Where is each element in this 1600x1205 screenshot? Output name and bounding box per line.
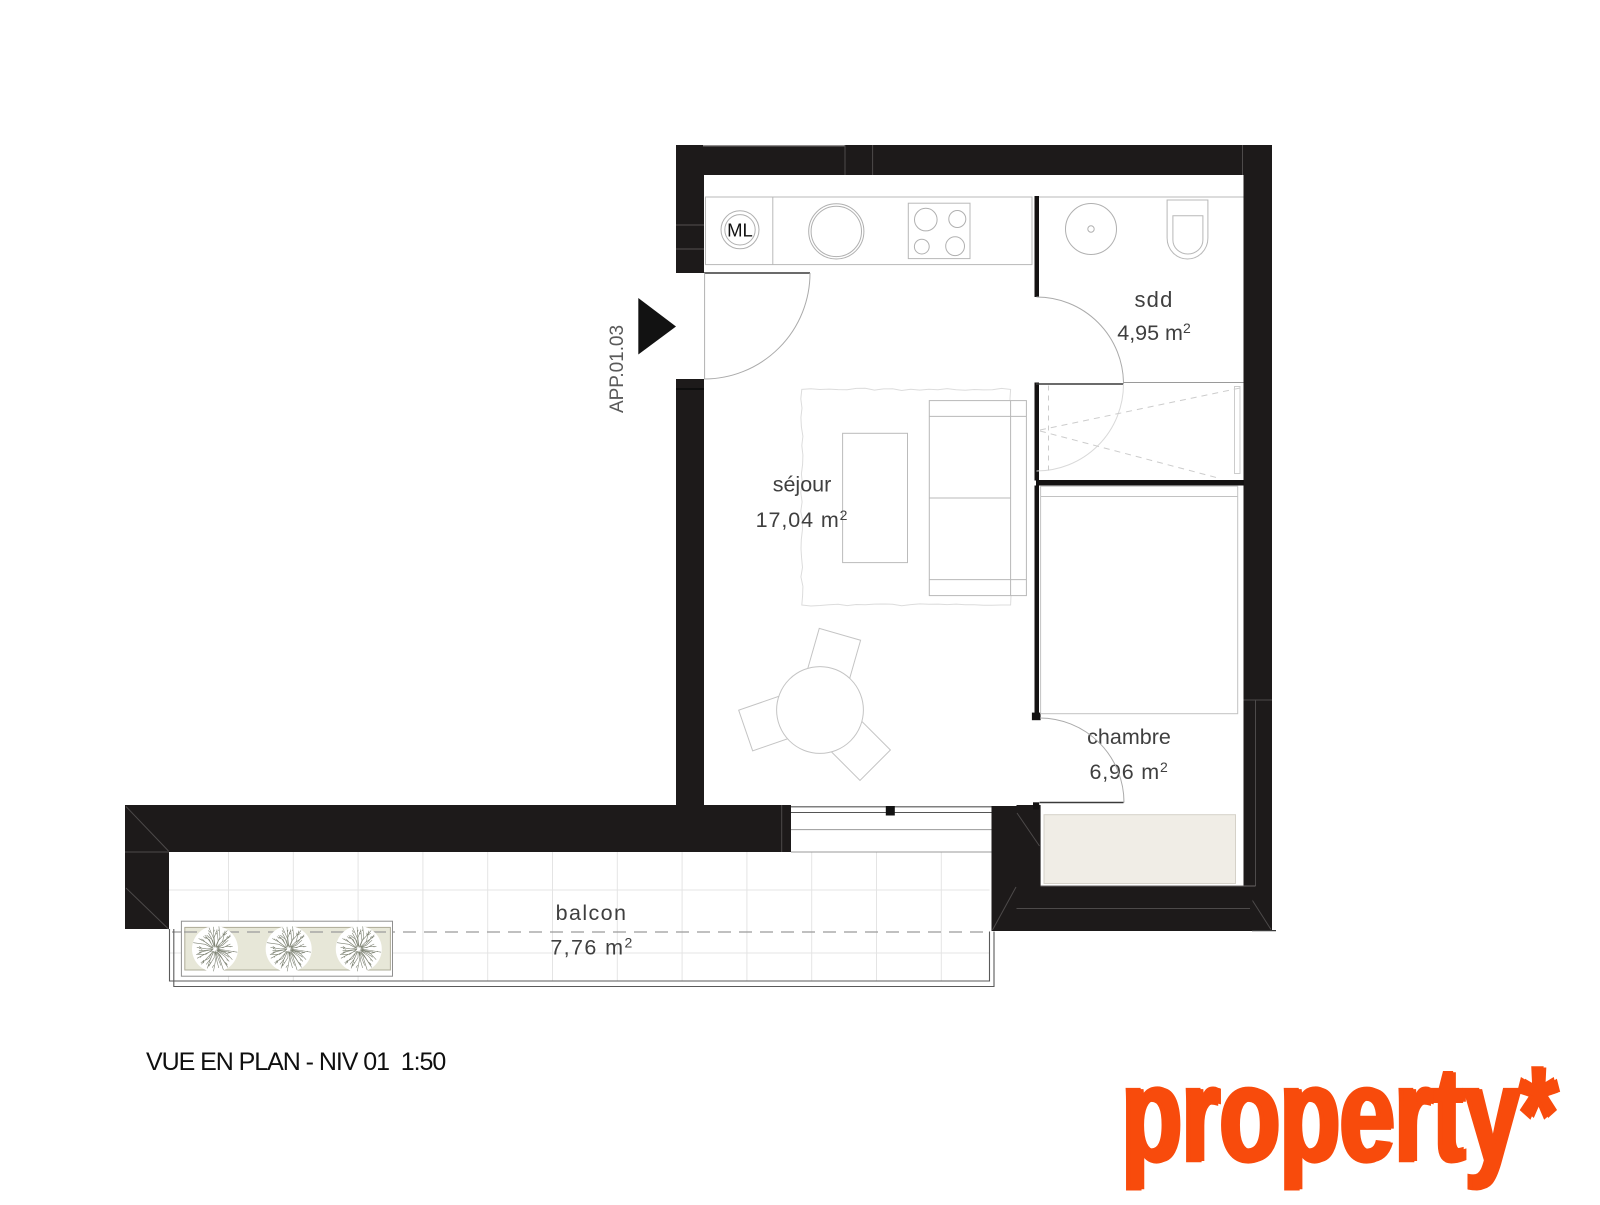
- svg-text:ML: ML: [727, 220, 753, 241]
- svg-text:séjour: séjour: [773, 473, 832, 497]
- svg-text:sdd: sdd: [1134, 287, 1173, 312]
- svg-text:chambre: chambre: [1087, 725, 1171, 749]
- svg-text:balcon: balcon: [556, 901, 628, 925]
- svg-text:6,96 m2: 6,96 m2: [1089, 759, 1168, 784]
- svg-text:4,95 m2: 4,95 m2: [1117, 320, 1191, 345]
- svg-text:APP.01.03: APP.01.03: [607, 325, 628, 413]
- svg-text:property*: property*: [1124, 1039, 1561, 1191]
- svg-text:VUE EN PLAN - NIV 01 1:50: VUE EN PLAN - NIV 01 1:50: [146, 1048, 445, 1076]
- svg-text:7,76 m2: 7,76 m2: [550, 935, 633, 960]
- svg-text:17,04 m2: 17,04 m2: [756, 507, 849, 532]
